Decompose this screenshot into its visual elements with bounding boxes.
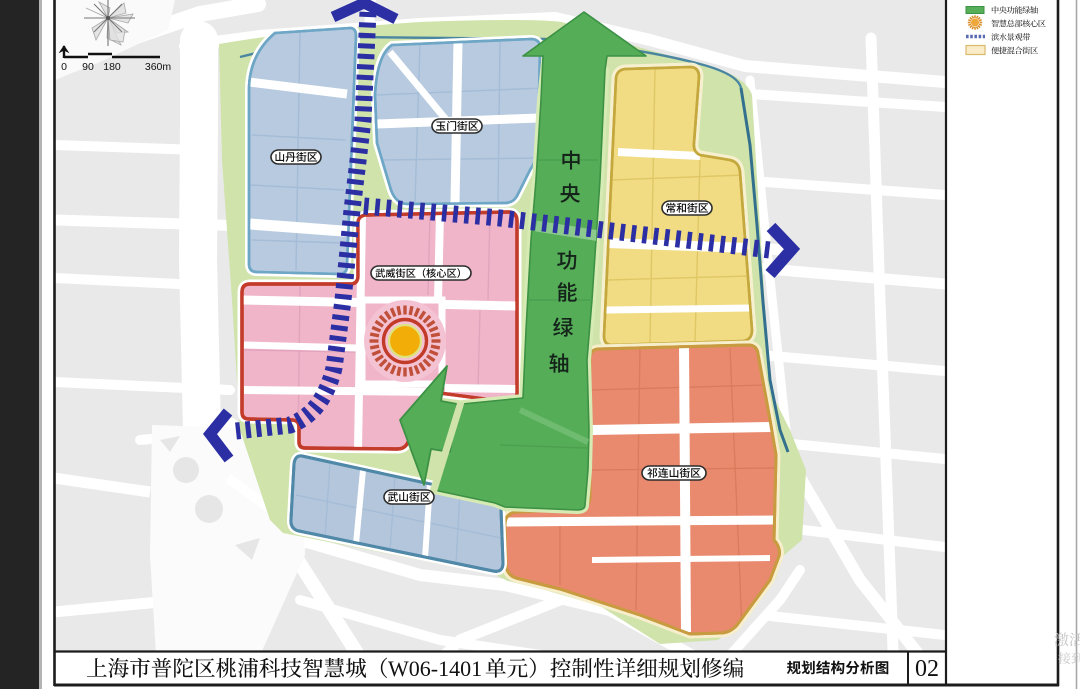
svg-text:02: 02 <box>915 656 939 682</box>
svg-text:180: 180 <box>103 61 121 73</box>
svg-text:0: 0 <box>61 61 67 73</box>
svg-text:360m: 360m <box>145 61 172 73</box>
svg-text:90: 90 <box>82 61 94 73</box>
svg-text:W06-1401: W06-1401 <box>388 656 482 681</box>
